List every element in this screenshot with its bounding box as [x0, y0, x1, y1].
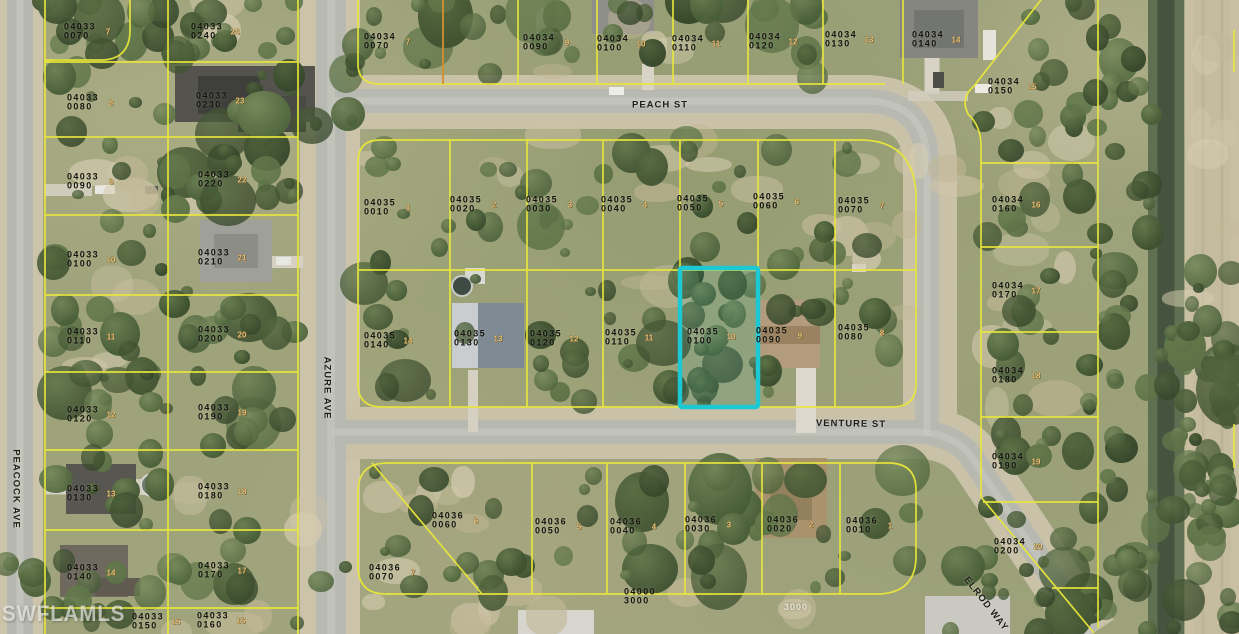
parcel-label: 040330200	[198, 326, 230, 343]
lot-number: 23	[236, 97, 245, 106]
parcel-label: 040330170	[198, 562, 230, 579]
parcel-label: 040360010	[846, 517, 878, 534]
lot-number: 1	[888, 522, 892, 531]
parcel-label: 040360030	[685, 516, 717, 533]
parcel-label: 040330240	[191, 23, 223, 40]
street-label: PEACH ST	[632, 100, 688, 111]
parcel-label: 040340090	[523, 34, 555, 51]
lot-number: 6	[474, 517, 478, 526]
lot-number: 17	[1032, 287, 1041, 296]
lot-number: 10	[107, 256, 116, 265]
parcel-label: 040350040	[601, 196, 633, 213]
parcel-label: 040330080	[67, 94, 99, 111]
lot-number: 7	[411, 569, 415, 578]
parcel-label: 040350010	[364, 199, 396, 216]
parcel-label: 040350120	[530, 330, 562, 347]
lot-number: 10	[637, 40, 646, 49]
lot-number: 11	[107, 333, 115, 342]
parcel-label: 040360040	[610, 518, 642, 535]
parcel-label: 040350090	[756, 327, 788, 344]
parcel-label: 040330160	[197, 612, 229, 629]
lot-number: 5	[577, 523, 581, 532]
lot-number: 12	[789, 38, 798, 47]
parcel-label: 040340120	[749, 33, 781, 50]
parcel-label: 040350050	[677, 195, 709, 212]
aerial-parcel-map: 0403300707040330240240403300808040330230…	[0, 0, 1239, 634]
street-label: ELROD WAY	[961, 575, 1010, 634]
parcel-label: 040330150	[132, 613, 164, 630]
lot-number: 20	[1034, 543, 1043, 552]
lot-number: 2	[809, 521, 813, 530]
lot-number: 18	[1032, 372, 1041, 381]
parcel-label: 040350140	[364, 332, 396, 349]
parcel-label: 040330210	[198, 249, 230, 266]
lot-number: 3	[568, 201, 572, 210]
parcel-label: 040350060	[753, 193, 785, 210]
lot-number: 19	[1032, 458, 1041, 467]
lot-number: 4	[652, 523, 656, 532]
lot-number: 9	[109, 178, 113, 187]
parcel-label: 040330140	[67, 564, 99, 581]
lot-number: 17	[238, 567, 247, 576]
lot-number: 9	[798, 332, 802, 341]
lot-number: 21	[238, 254, 247, 263]
lot-number: 7	[880, 202, 884, 211]
lot-number: 8	[109, 99, 113, 108]
parcel-label: 040340070	[364, 33, 396, 50]
lot-number: 4	[643, 201, 647, 210]
parcel-label: 040340170	[992, 282, 1024, 299]
lot-number: 12	[107, 411, 116, 420]
watermark: SWFLAMLS	[2, 601, 125, 627]
lot-number: 12	[570, 335, 579, 344]
lot-number: 10	[727, 333, 736, 342]
street-label: PEACOCK AVE	[11, 449, 22, 529]
lot-number: 16	[237, 617, 246, 626]
parcel-label: 040340160	[992, 196, 1024, 213]
parcel-label: 040340190	[992, 453, 1024, 470]
parcel-label: 040340110	[672, 35, 704, 52]
lot-number: 8	[880, 329, 884, 338]
lot-number: 14	[107, 569, 116, 578]
parcel-label: 040330120	[67, 406, 99, 423]
lot-number: 11	[645, 334, 653, 343]
parcel-label: 040340140	[912, 31, 944, 48]
lot-number: 7	[406, 38, 410, 47]
parcel-label: 040330090	[67, 173, 99, 190]
parcel-label: 040003000	[624, 588, 656, 605]
parcel-label: 040340200	[994, 538, 1026, 555]
lot-number: 1	[406, 204, 410, 213]
lot-number: 14	[404, 337, 413, 346]
parcel-label: 040330190	[198, 404, 230, 421]
parcel-label: 040360020	[767, 516, 799, 533]
lot-number: 13	[107, 490, 116, 499]
parcel-label: 040340130	[825, 31, 857, 48]
parcel-label: 040350070	[838, 197, 870, 214]
parcel-label: 040350080	[838, 324, 870, 341]
lot-number: 18	[238, 488, 247, 497]
lot-number: 19	[238, 409, 247, 418]
lot-number: 6	[795, 198, 799, 207]
lot-number: 15	[1028, 83, 1037, 92]
parcel-label: 040330070	[64, 23, 96, 40]
street-label: AZURE AVE	[322, 357, 333, 420]
lot-number: 22	[238, 176, 247, 185]
parcel-label: 040350030	[526, 196, 558, 213]
lot-number: 7	[106, 28, 110, 37]
parcel-label: 040350110	[605, 329, 637, 346]
parcel-label: 040350130	[454, 330, 486, 347]
lot-number: 9	[565, 39, 569, 48]
lot-number: 24	[231, 28, 240, 37]
street-label: VENTURE ST	[816, 418, 886, 430]
parcel-label: 040330100	[67, 251, 99, 268]
lot-number: 20	[238, 331, 247, 340]
lot-number: 14	[952, 36, 961, 45]
parcel-label: 040330110	[67, 328, 99, 345]
lot-number: 2	[492, 201, 496, 210]
lot-number: 15	[172, 618, 181, 627]
lot-number: 16	[1032, 201, 1041, 210]
lot-number: 5	[719, 200, 723, 209]
parcel-label: 040330230	[196, 92, 228, 109]
parcel-label: 040360070	[369, 564, 401, 581]
lot-number: 11	[712, 40, 720, 49]
lot-number: 13	[865, 36, 874, 45]
parcel-label: 040340100	[597, 35, 629, 52]
parcel-label: 040360060	[432, 512, 464, 529]
parcel-label: 040340150	[988, 78, 1020, 95]
parcel-label: 040330220	[198, 171, 230, 188]
lot-number: 3	[727, 521, 731, 530]
parcel-label: 040350020	[450, 196, 482, 213]
parcel-label: 040350100	[687, 328, 719, 345]
parcel-label: 040360050	[535, 518, 567, 535]
parcel-label: 040330130	[67, 485, 99, 502]
parcel-label: 040330180	[198, 483, 230, 500]
lot-number: 13	[494, 335, 503, 344]
labels-layer: 0403300707040330240240403300808040330230…	[0, 0, 1239, 634]
parcel-label: 040340180	[992, 367, 1024, 384]
strip-label: 3000	[784, 602, 808, 612]
